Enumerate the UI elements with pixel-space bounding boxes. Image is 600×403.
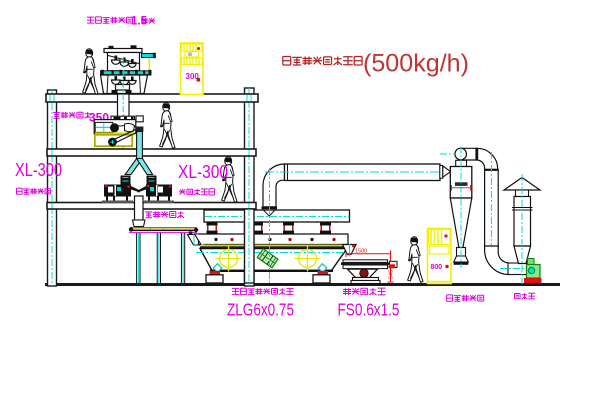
svg-text:(500kg/h): (500kg/h)	[363, 50, 469, 78]
svg-text:ZLG6x0.75: ZLG6x0.75	[227, 300, 294, 320]
svg-text:XL-300: XL-300	[178, 162, 228, 182]
svg-text:1500: 1500	[355, 249, 367, 255]
svg-text:XL-300: XL-300	[15, 160, 62, 180]
svg-text:FS0.6x1.5: FS0.6x1.5	[338, 300, 400, 320]
svg-text:545: 545	[389, 270, 395, 279]
svg-text:1.5: 1.5	[131, 16, 148, 28]
svg-text:800: 800	[431, 264, 443, 271]
